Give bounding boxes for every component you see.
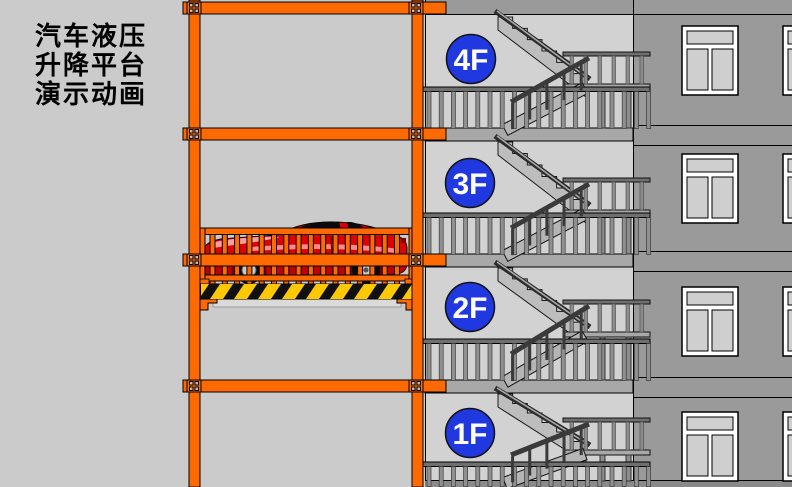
handrail-post bbox=[580, 190, 583, 216]
floor-badge-1f: 1F bbox=[446, 409, 495, 458]
window bbox=[682, 154, 738, 223]
landing-rail-bar bbox=[563, 418, 650, 422]
bolt bbox=[412, 256, 416, 260]
corridor-baluster bbox=[610, 344, 614, 381]
window bbox=[783, 154, 792, 223]
handrail-post bbox=[545, 210, 548, 236]
stairwell-floor-slab bbox=[425, 128, 633, 141]
landing-baluster bbox=[598, 182, 602, 210]
bolt bbox=[195, 387, 199, 391]
corridor-baluster bbox=[439, 92, 443, 129]
corridor-baluster bbox=[427, 467, 431, 487]
window-transom-pane bbox=[788, 31, 792, 44]
frame-column-left bbox=[189, 0, 200, 487]
bolt-plate bbox=[187, 128, 201, 140]
corridor-baluster bbox=[525, 344, 529, 381]
landing-support bbox=[626, 215, 631, 254]
landing-baluster bbox=[612, 56, 616, 84]
title-line: 演示动画 bbox=[18, 80, 164, 109]
corridor-baluster bbox=[537, 344, 541, 381]
corridor-baluster bbox=[427, 218, 431, 255]
window-pane bbox=[788, 177, 792, 218]
corridor-baluster bbox=[598, 344, 602, 381]
corridor-baluster bbox=[464, 467, 468, 487]
handrail-post bbox=[580, 64, 583, 90]
bolt-plate bbox=[409, 254, 423, 266]
corridor-baluster bbox=[573, 218, 577, 255]
corridor-baluster bbox=[573, 344, 577, 381]
window-transom-pane bbox=[788, 159, 792, 172]
handrail-post bbox=[545, 84, 548, 110]
landing-baluster bbox=[640, 56, 644, 84]
corridor-baluster bbox=[500, 467, 504, 487]
corridor-baluster bbox=[488, 344, 492, 381]
corridor-baluster bbox=[549, 92, 553, 129]
cage-top-rail bbox=[197, 228, 417, 235]
window-transom-pane bbox=[687, 159, 733, 172]
corridor-baluster bbox=[464, 344, 468, 381]
floor-badge-3f: 3F bbox=[446, 159, 495, 208]
corridor-baluster bbox=[439, 344, 443, 381]
title-line: 升降平台 bbox=[18, 51, 164, 80]
corridor-baluster bbox=[537, 218, 541, 255]
window-pane bbox=[788, 49, 792, 90]
window-pane bbox=[788, 310, 792, 351]
bolt bbox=[195, 256, 199, 260]
handrail-post bbox=[545, 443, 548, 469]
frame-beam bbox=[183, 380, 446, 392]
corridor-baluster bbox=[439, 218, 443, 255]
floor-badge-label: 3F bbox=[452, 168, 487, 201]
corridor-baluster bbox=[610, 467, 614, 487]
window-pane bbox=[687, 177, 708, 218]
handrail-post bbox=[528, 219, 531, 245]
bolt-plate bbox=[409, 380, 423, 392]
corridor-baluster bbox=[464, 218, 468, 255]
handrail-post bbox=[545, 334, 548, 360]
roof-band bbox=[425, 0, 792, 14]
corridor-baluster bbox=[647, 344, 651, 381]
corridor-baluster bbox=[586, 344, 590, 381]
floor-badge-4f: 4F bbox=[447, 35, 496, 84]
bolt bbox=[190, 9, 194, 13]
bolt bbox=[195, 4, 199, 8]
landing-baluster bbox=[626, 422, 630, 450]
corridor-baluster bbox=[451, 92, 455, 129]
title-line: 汽车液压 bbox=[18, 22, 164, 51]
corridor-baluster bbox=[549, 344, 553, 381]
landing-support bbox=[626, 89, 631, 128]
corridor-baluster bbox=[573, 92, 577, 129]
corridor-baluster bbox=[549, 467, 553, 487]
window-pane bbox=[687, 435, 708, 476]
handrail-post bbox=[563, 436, 566, 462]
landing-baluster bbox=[626, 182, 630, 210]
corridor-baluster bbox=[586, 467, 590, 487]
handrail-post bbox=[511, 355, 514, 381]
window-pane bbox=[712, 310, 733, 351]
landing-baluster bbox=[598, 422, 602, 450]
corridor-baluster bbox=[525, 218, 529, 255]
bolt bbox=[417, 256, 421, 260]
corridor-baluster bbox=[647, 218, 651, 255]
corridor-baluster bbox=[598, 218, 602, 255]
handrail-post bbox=[563, 200, 566, 226]
landing-baluster bbox=[626, 56, 630, 84]
corridor-baluster bbox=[598, 467, 602, 487]
title: 汽车液压 升降平台 演示动画 bbox=[18, 22, 164, 109]
corridor-baluster bbox=[476, 344, 480, 381]
bolt bbox=[195, 130, 199, 134]
window bbox=[783, 412, 792, 481]
bolt bbox=[195, 9, 199, 13]
bolt bbox=[190, 256, 194, 260]
window-pane bbox=[712, 435, 733, 476]
handrail-post bbox=[563, 323, 566, 349]
car-lift-animation-scene: 4F 3F 2F 1F 汽车液压 升降平台 演示动画 bbox=[0, 0, 792, 487]
window-pane bbox=[712, 177, 733, 218]
corridor-baluster bbox=[427, 92, 431, 129]
deck-underside bbox=[213, 299, 401, 307]
corridor-baluster bbox=[634, 218, 638, 255]
bolt bbox=[195, 382, 199, 386]
handrail-post bbox=[511, 103, 514, 129]
frame-beam bbox=[183, 128, 446, 140]
corridor-baluster bbox=[634, 344, 638, 381]
landing-baluster bbox=[612, 182, 616, 210]
corridor-baluster bbox=[451, 218, 455, 255]
bolt bbox=[412, 130, 416, 134]
hazard-platform-deck bbox=[186, 279, 449, 310]
landing-rail-bar bbox=[563, 178, 650, 182]
window-transom-pane bbox=[788, 417, 792, 430]
bolt bbox=[195, 135, 199, 139]
window-pane bbox=[687, 49, 708, 90]
bolt bbox=[190, 261, 194, 265]
window bbox=[682, 26, 738, 95]
frame-column-right bbox=[412, 0, 423, 487]
bolt-plate bbox=[187, 254, 201, 266]
landing-baluster bbox=[612, 422, 616, 450]
corridor-baluster bbox=[634, 92, 638, 129]
bolt bbox=[412, 387, 416, 391]
bolt bbox=[412, 135, 416, 139]
bolt bbox=[417, 382, 421, 386]
landing-support bbox=[626, 455, 631, 481]
corridor-baluster bbox=[488, 218, 492, 255]
floor-badge-label: 2F bbox=[452, 292, 487, 325]
handrail-post bbox=[580, 429, 583, 455]
bolt bbox=[417, 9, 421, 13]
landing-baluster bbox=[640, 182, 644, 210]
bolt bbox=[417, 261, 421, 265]
corridor-baluster bbox=[525, 467, 529, 487]
corridor-baluster bbox=[622, 344, 626, 381]
handrail-post bbox=[528, 344, 531, 370]
cage-mid-rail bbox=[197, 275, 417, 281]
bolt bbox=[412, 382, 416, 386]
bolt bbox=[417, 387, 421, 391]
bolt bbox=[190, 382, 194, 386]
corridor-baluster bbox=[500, 344, 504, 381]
corridor-baluster bbox=[488, 92, 492, 129]
landing-baluster bbox=[570, 422, 574, 450]
window-pane bbox=[788, 435, 792, 476]
bolt bbox=[190, 387, 194, 391]
window-transom-pane bbox=[687, 31, 733, 44]
corridor-baluster bbox=[598, 92, 602, 129]
bolt-plate bbox=[187, 2, 201, 14]
landing-baluster bbox=[626, 304, 630, 332]
corridor-baluster bbox=[427, 344, 431, 381]
corridor-baluster bbox=[476, 92, 480, 129]
corridor-baluster bbox=[634, 467, 638, 487]
corridor-baluster bbox=[500, 218, 504, 255]
bolt-plate bbox=[409, 2, 423, 14]
window bbox=[682, 412, 738, 481]
corridor-baluster bbox=[622, 92, 626, 129]
window-transom-pane bbox=[687, 417, 733, 430]
floor-badge-2f: 2F bbox=[446, 283, 495, 332]
corridor-baluster bbox=[573, 467, 577, 487]
corridor-baluster bbox=[537, 92, 541, 129]
corridor-baluster bbox=[647, 92, 651, 129]
handrail-post bbox=[580, 313, 583, 339]
window-pane bbox=[712, 49, 733, 90]
frame-beam bbox=[183, 254, 446, 266]
corridor-baluster bbox=[610, 92, 614, 129]
handrail-post bbox=[511, 229, 514, 255]
corridor-baluster bbox=[451, 344, 455, 381]
handrail-post bbox=[511, 456, 514, 482]
corridor-baluster bbox=[610, 218, 614, 255]
stairwell-floor-slab bbox=[425, 254, 633, 267]
floor-badge-label: 4F bbox=[453, 44, 488, 77]
bolt bbox=[412, 9, 416, 13]
window bbox=[783, 26, 792, 95]
window-transom-pane bbox=[687, 292, 733, 305]
corridor-baluster bbox=[476, 218, 480, 255]
floor-badge-label: 1F bbox=[452, 418, 487, 451]
corridor-baluster bbox=[476, 467, 480, 487]
corridor-baluster bbox=[622, 467, 626, 487]
landing-baluster bbox=[640, 422, 644, 450]
handrail-post bbox=[563, 74, 566, 100]
corridor-baluster bbox=[586, 218, 590, 255]
bolt-plate bbox=[409, 128, 423, 140]
bolt bbox=[190, 4, 194, 8]
landing-rail-bar bbox=[563, 52, 650, 56]
bolt bbox=[417, 4, 421, 8]
stairwell-floor-slab bbox=[425, 380, 633, 393]
bolt bbox=[417, 135, 421, 139]
bolt-plate bbox=[187, 380, 201, 392]
bolt bbox=[412, 261, 416, 265]
corridor-rail-bar bbox=[420, 462, 650, 467]
bolt bbox=[195, 261, 199, 265]
landing-rail-bar bbox=[563, 300, 650, 304]
window-transom-pane bbox=[788, 292, 792, 305]
landing-baluster bbox=[598, 304, 602, 332]
corridor-baluster bbox=[451, 467, 455, 487]
corridor-baluster bbox=[464, 92, 468, 129]
frame-beam bbox=[183, 2, 446, 14]
corridor-baluster bbox=[537, 467, 541, 487]
corridor-baluster bbox=[439, 467, 443, 487]
bolt bbox=[190, 135, 194, 139]
bolt bbox=[412, 4, 416, 8]
bolt bbox=[190, 130, 194, 134]
corridor-baluster bbox=[525, 92, 529, 129]
landing-baluster bbox=[612, 304, 616, 332]
window bbox=[682, 287, 738, 356]
handrail-post bbox=[528, 93, 531, 119]
handrail-post bbox=[528, 450, 531, 476]
window bbox=[783, 287, 792, 356]
landing-baluster bbox=[640, 304, 644, 332]
corridor-baluster bbox=[622, 218, 626, 255]
corridor-baluster bbox=[561, 467, 565, 487]
landing-baluster bbox=[598, 56, 602, 84]
window-pane bbox=[687, 310, 708, 351]
corridor-baluster bbox=[586, 92, 590, 129]
corridor-baluster bbox=[549, 218, 553, 255]
car-tail-light bbox=[401, 238, 406, 243]
car-wheel-center bbox=[364, 268, 369, 273]
corridor-baluster bbox=[647, 467, 651, 487]
corridor-baluster bbox=[488, 467, 492, 487]
bolt bbox=[417, 130, 421, 134]
corridor-baluster bbox=[500, 92, 504, 129]
